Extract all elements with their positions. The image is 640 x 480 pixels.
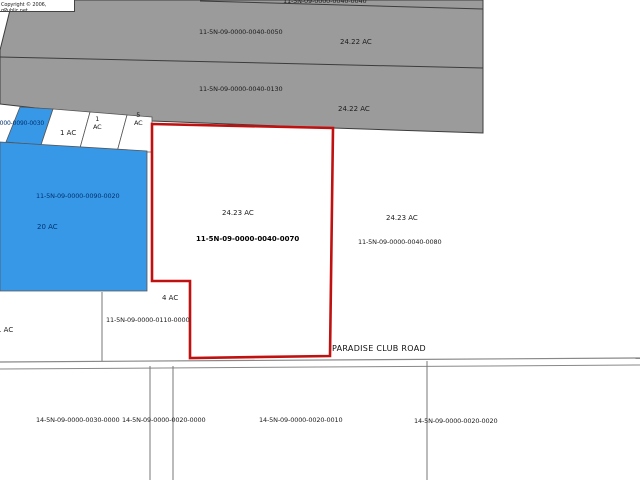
copyright-box: Copyright © 2006, qPublic.net bbox=[0, 0, 75, 12]
parcel-id-north-strip: 11-5N-09-0000-0040-0050 bbox=[199, 29, 282, 37]
parcel-id-blue-main: 11-5N-09-0000-0090-0020 bbox=[36, 193, 119, 201]
parcel-id-selected: 11-5N-09-0000-0040-0070 bbox=[196, 236, 299, 244]
parcel-id-east: 11-5N-09-0000-0040-0080 bbox=[358, 239, 441, 247]
acreage-north-strip: 24.22 AC bbox=[340, 39, 372, 47]
copyright-text: Copyright © 2006, qPublic.net bbox=[1, 2, 74, 12]
acreage-five-ac: 5 AC bbox=[134, 112, 143, 127]
acreage-one-ac-west: 1 AC bbox=[60, 130, 76, 138]
road-edge-south bbox=[0, 365, 640, 369]
parcel-id-south-b: 14-5N-09-0000-0020-0000 bbox=[122, 417, 205, 425]
parcel-id-south-d: 14-5N-09-0000-0020-0020 bbox=[414, 418, 497, 426]
acreage-blue-main: 20 AC bbox=[37, 224, 58, 232]
road-edge-north bbox=[0, 358, 640, 362]
parcel-id-mid-strip: 11-5N-09-0000-0040-0130 bbox=[199, 86, 282, 94]
parcel-id-south-c: 14-5N-09-0000-0020-0010 bbox=[259, 417, 342, 425]
acreage-four-ac: 4 AC bbox=[162, 295, 178, 303]
parcel-geometry bbox=[0, 0, 640, 480]
acreage-selected: 24.23 AC bbox=[222, 210, 254, 218]
parcel-blue-main[interactable] bbox=[0, 142, 147, 291]
acreage-east: 24.23 AC bbox=[386, 215, 418, 223]
acreage-one-ac-south: 1 AC bbox=[0, 327, 13, 335]
parcel-id-four-ac: 11-5N-09-0000-0110-0000 bbox=[106, 317, 189, 325]
parcel-id-top-sliver: 11-5N-09-0000-0040-0040 bbox=[283, 0, 366, 6]
parcel-id-small-blue: 0000-0090-0030 bbox=[0, 120, 44, 128]
parcel-id-south-a: 14-5N-09-0000-0030-0000 bbox=[36, 417, 119, 425]
acreage-mid-strip: 24.22 AC bbox=[338, 106, 370, 114]
acreage-one-ac-mid: 1 AC bbox=[93, 116, 102, 131]
parcel-map-viewport: Copyright © 2006, qPublic.net 11-5N-09-0… bbox=[0, 0, 640, 480]
road-name-label: PARADISE CLUB ROAD bbox=[332, 345, 426, 353]
